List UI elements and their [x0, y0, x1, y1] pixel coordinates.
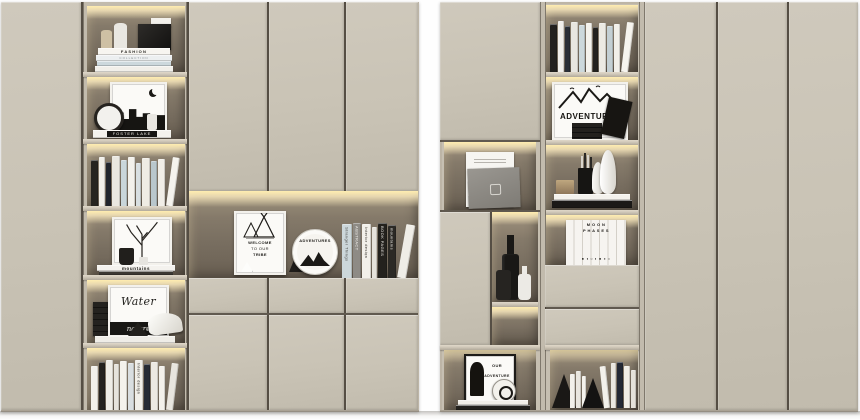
panel-gap [267, 315, 269, 410]
book-spine [397, 224, 415, 279]
book-spine [158, 159, 165, 206]
alarm-clock [94, 103, 124, 133]
book-spine [624, 366, 630, 408]
door-panel [440, 2, 540, 140]
book-spine [112, 156, 120, 206]
gray-folder-decor [467, 167, 520, 209]
book-stack-spine: FOSTER LAKE [93, 130, 171, 138]
book-spine [151, 362, 158, 410]
book-spine [151, 161, 157, 206]
book-spine [128, 363, 134, 410]
book-spine [607, 26, 613, 72]
panel-gap [344, 315, 346, 410]
brush-decor [587, 155, 589, 168]
led-strip [189, 191, 418, 207]
poster-text: ADVENTURE [484, 374, 510, 378]
book-spine [571, 22, 578, 72]
figure-silhouette [470, 362, 484, 396]
door-panel [346, 2, 418, 191]
right-cabinet: OUR ADVENTURE ADVENTURES [440, 2, 858, 412]
book-row [91, 154, 177, 206]
book-spine [565, 26, 570, 72]
candle-decor [101, 30, 112, 50]
book-spine [114, 364, 119, 410]
tall-door-panel [718, 2, 787, 410]
white-vase [518, 274, 531, 300]
book-spine [128, 157, 135, 206]
tall-door-panel [645, 2, 716, 410]
book-spine [550, 24, 557, 72]
led-strip [546, 5, 638, 18]
pen-decor [584, 153, 586, 168]
poster-text: OUR [485, 364, 509, 369]
moon-phases-books: M O O N P H A S E S ● ◑ ○ ◐ ● ◑ ○ [566, 220, 626, 265]
door-panel [269, 2, 344, 191]
book-row: Interior design [91, 358, 177, 410]
book-spine [576, 371, 581, 408]
black-jar [496, 270, 511, 300]
drawer-front [545, 265, 639, 307]
book-spine [614, 24, 620, 72]
book-spine [99, 157, 105, 206]
book-spine [621, 22, 634, 72]
teepee-drawing [236, 213, 284, 239]
book-title: Interior design [137, 363, 142, 394]
book-spine [617, 362, 623, 408]
pen-cup [578, 168, 593, 194]
book-spine [570, 374, 575, 408]
book-title: Stranger Things [345, 227, 350, 261]
wooden-box-decor [556, 180, 574, 194]
white-vase-tall [600, 150, 616, 194]
book-spine [121, 160, 127, 206]
black-book-stack [572, 123, 602, 139]
book-spine [136, 163, 141, 206]
book-title: mountains [390, 228, 395, 250]
book-spine [593, 27, 598, 72]
empty-niche [492, 307, 538, 345]
book-spine [159, 366, 165, 410]
book-spine [611, 363, 616, 408]
book-stack-spine [95, 336, 175, 343]
book-spine [142, 158, 150, 206]
panel-gap [344, 2, 346, 191]
magazine-text-lines [474, 159, 506, 165]
book-title: mountains [122, 266, 150, 271]
panel-gap [267, 2, 269, 191]
floor-shadow [0, 411, 860, 420]
drawer-front [346, 278, 418, 313]
book-row: Stranger ThingsABSTRACTInterior designBO… [342, 220, 418, 278]
door-panel [189, 2, 267, 191]
door-panel [346, 315, 418, 410]
book-series-title: P H A S E S [566, 229, 626, 234]
book-spine: Interior design [362, 224, 371, 278]
pen-decor [590, 157, 592, 168]
plate-mountains [300, 252, 330, 266]
led-strip [492, 307, 538, 320]
drawer-front [545, 309, 639, 345]
book-spine: mountains [388, 225, 396, 278]
book-spine: Stranger Things [342, 224, 352, 278]
book-title: FOSTER LAKE [107, 131, 158, 137]
book-spine [106, 360, 113, 410]
white-cup-decor [139, 257, 148, 265]
book-spine [631, 370, 636, 408]
panel-gap [267, 278, 269, 313]
candle-decor [114, 23, 127, 50]
book-stack-spine [552, 200, 632, 208]
book-spine [144, 364, 150, 410]
book-row [604, 360, 636, 408]
panel-gap [344, 278, 346, 313]
book-spine: Interior design [135, 360, 143, 410]
adventures-plate: ADVENTURES [292, 229, 338, 275]
drawer-front [269, 278, 344, 313]
book-spine [586, 23, 592, 72]
book-title: ABSTRACT [355, 226, 360, 251]
book-spine [106, 162, 111, 206]
book-spine [372, 227, 377, 278]
door-panel [189, 315, 267, 410]
framed-art-teepee: WELCOME TO OUR TRIBE [234, 211, 286, 275]
book-title: Interior design [364, 227, 369, 258]
led-strip [546, 145, 638, 158]
book-title: FASHION [121, 49, 147, 54]
scene: FASHION COLLECTION FOSTER LAKE [0, 0, 860, 420]
book-row [550, 20, 634, 72]
book-spine: BOOK PAGES [378, 223, 387, 278]
mini-cone-decor [241, 262, 253, 272]
white-bottle-decor [147, 114, 157, 130]
badge-ring [499, 386, 513, 400]
book-spine [579, 25, 585, 72]
book-spine [120, 361, 127, 410]
folder-logo [490, 184, 501, 195]
book-title: COLLECTION [119, 56, 148, 60]
book-title: BOOK PAGES [380, 226, 385, 256]
panel-gap [716, 2, 718, 410]
art-title: Water [110, 295, 167, 308]
book-spine [99, 362, 105, 410]
left-cabinet: FASHION COLLECTION FOSTER LAKE [1, 2, 419, 412]
moon-phase-icons: ● ◑ ○ ◐ ● ◑ ○ [566, 257, 626, 262]
door-panel [269, 315, 344, 410]
book-spine [91, 160, 98, 206]
book-spine [558, 21, 564, 72]
book-spine: ABSTRACT [353, 223, 361, 278]
tall-door-panel [789, 2, 858, 410]
plate-title: ADVENTURES [293, 239, 337, 244]
drawer-front [189, 278, 267, 313]
black-vase [119, 248, 134, 265]
door-panel [440, 212, 490, 345]
book-spine [599, 23, 606, 72]
book-stack-spine: FASHION [98, 48, 170, 55]
book-spine [91, 366, 98, 410]
brush-decor [581, 156, 583, 168]
panel-gap [787, 2, 789, 410]
moon-mask [152, 87, 160, 95]
black-box-decor [138, 24, 171, 50]
left-tall-door-panel [1, 2, 81, 410]
book-spine [166, 363, 179, 411]
led-strip [492, 212, 538, 225]
art-text: TRIBE [236, 253, 284, 258]
